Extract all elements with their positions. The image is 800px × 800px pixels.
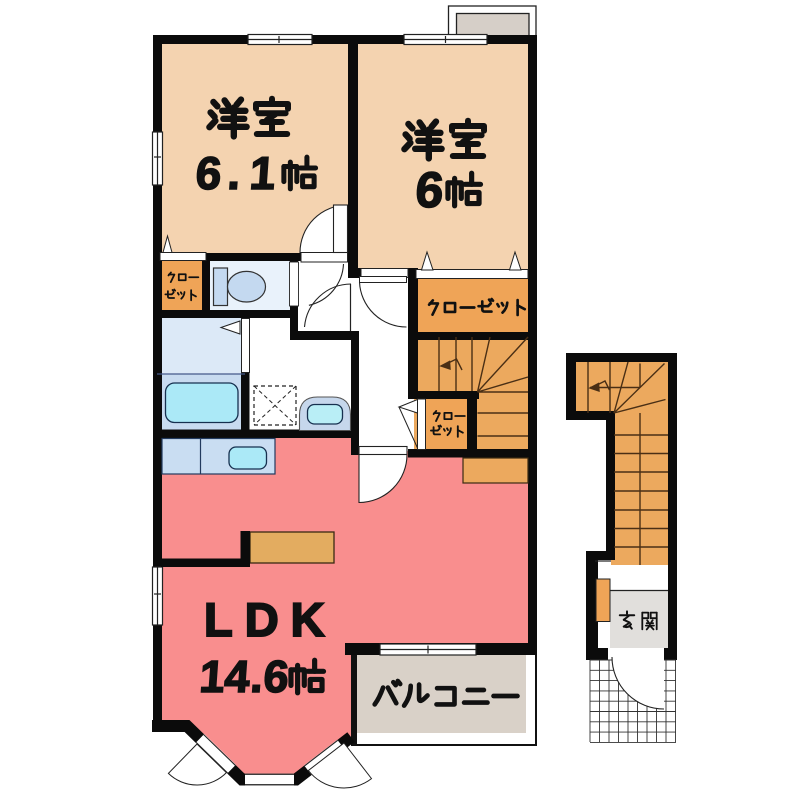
- svg-text:LDK: LDK: [204, 593, 337, 646]
- svg-text:6: 6: [414, 162, 446, 218]
- svg-text:14: 14: [198, 651, 252, 702]
- svg-text:6: 6: [194, 147, 223, 199]
- svg-text:1: 1: [248, 147, 277, 199]
- svg-text:6: 6: [262, 651, 291, 702]
